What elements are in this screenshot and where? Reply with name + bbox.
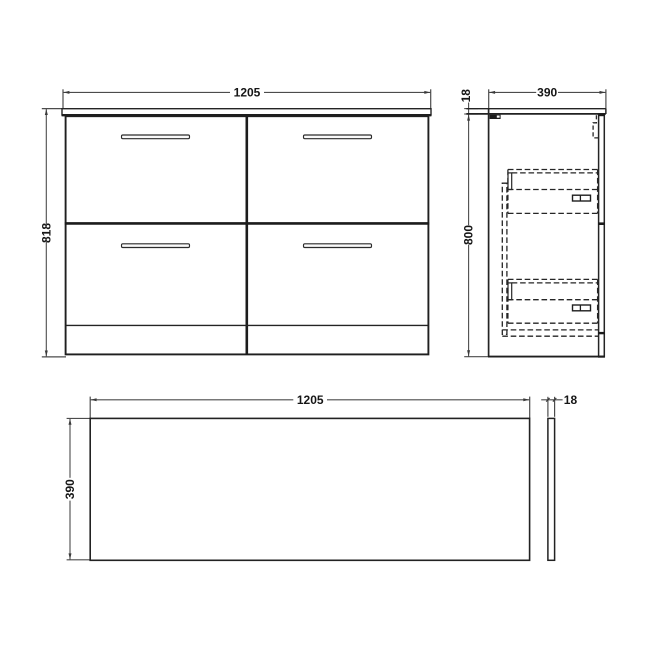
svg-text:1205: 1205 (234, 86, 261, 100)
svg-text:390: 390 (537, 86, 557, 100)
svg-text:800: 800 (462, 225, 476, 245)
svg-text:818: 818 (39, 223, 53, 243)
svg-text:1205: 1205 (297, 393, 324, 407)
svg-text:390: 390 (63, 479, 77, 499)
svg-text:18: 18 (564, 393, 578, 407)
svg-text:18: 18 (459, 89, 473, 103)
